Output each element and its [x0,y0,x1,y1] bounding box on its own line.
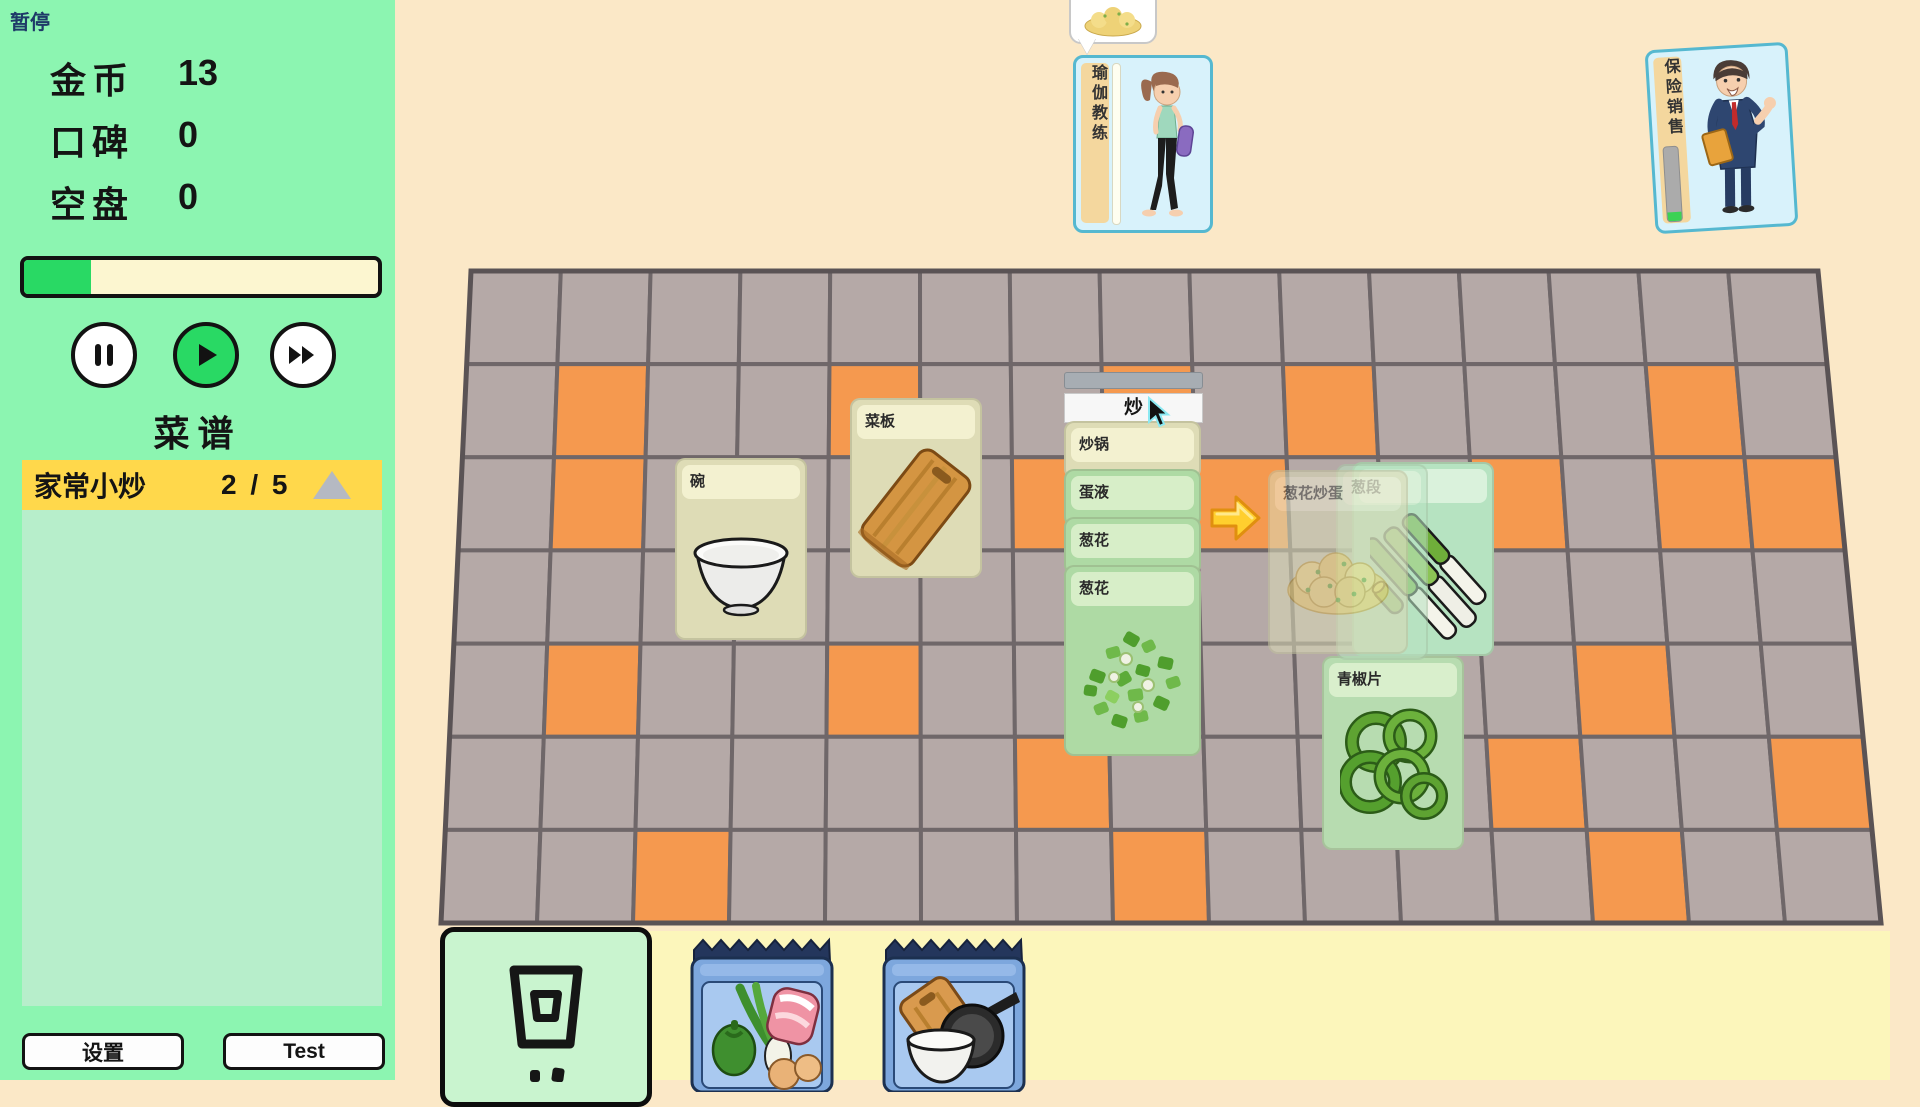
recipe-row[interactable]: 家常小炒 2 / 5 [22,460,382,510]
order-dish-icon [1081,4,1145,38]
customer-insurance-sales-name: 保险销售 [1653,57,1686,139]
day-progress-bar [20,256,382,298]
stat-empty-plates-label: 空盘 [50,176,134,228]
recipe-name: 家常小炒 [34,465,146,505]
cook-progress-bar [1064,372,1203,389]
pepper-rings-art [1340,704,1450,834]
recycle-card[interactable] [440,927,652,1107]
card-bowl[interactable]: 碗 [675,458,807,640]
fast-forward-icon [287,342,319,368]
recipes-heading: 菜谱 [0,405,395,457]
day-progress-fill [24,260,91,294]
card-green-pepper-slices-title: 青椒片 [1329,663,1457,697]
bowl-art [689,513,793,628]
customer-insurance-sales[interactable]: 保险销售 [1645,42,1799,234]
stat-empty-plates-value: 0 [178,176,198,218]
card-cutting-board-title: 菜板 [857,405,975,439]
settings-button[interactable]: 设置 [22,1033,184,1070]
card-cutting-board[interactable]: 菜板 [850,398,982,578]
stat-reputation-value: 0 [178,114,198,156]
customer-yoga-coach-name: 瑜伽教练 [1081,64,1109,144]
card-bowl-title: 碗 [682,465,800,499]
card-chopped-scallion-1-title: 葱花 [1071,524,1194,558]
card-result-scallion-egg-title: 葱花炒蛋 [1275,477,1401,511]
stat-reputation-label: 口碑 [50,114,134,166]
customer-insurance-patience-fill [1667,212,1682,222]
stat-coins-value: 13 [178,52,218,94]
recycle-icon [500,962,592,1082]
card-chopped-scallion-2-title: 葱花 [1071,572,1194,606]
sidebar: 暂停 金币 13 口碑 0 空盘 0 菜谱 家常小炒 2 / 5 [0,0,395,1080]
stat-empty-plates: 空盘 0 [0,176,395,220]
pause-icon [91,342,117,368]
scrambled-egg-art [1278,528,1398,638]
chopped-scallion-art [1078,615,1188,745]
stat-coins: 金币 13 [0,52,395,96]
card-chopped-scallion-2[interactable]: 葱花 [1064,565,1201,756]
pause-state-tag: 暂停 [10,6,50,35]
customer-yoga-coach[interactable]: 瑜伽教练 [1073,55,1213,233]
collapse-caret-icon[interactable] [313,471,351,499]
pause-button[interactable] [71,322,137,388]
craft-arrow-icon [1210,494,1262,542]
test-button[interactable]: Test [223,1033,385,1070]
yoga-coach-figure [1122,66,1206,224]
play-button[interactable] [173,322,239,388]
insurance-sales-figure [1684,53,1790,221]
play-icon [193,342,219,368]
recipe-count: 2 / 5 [221,469,290,501]
customer-yoga-patience-bar [1112,63,1121,225]
order-bubble-tail [1078,38,1096,54]
recipe-detail-panel [22,510,382,1006]
stat-coins-label: 金币 [50,52,134,104]
mouse-cursor [1146,396,1172,430]
card-wok-title: 炒锅 [1071,428,1194,462]
stat-reputation: 口碑 0 [0,114,395,158]
ingredient-pack[interactable] [688,932,836,1092]
cutting-board-art [858,442,974,570]
fast-forward-button[interactable] [270,322,336,388]
cookware-pack[interactable] [880,932,1028,1092]
cook-action-label: 炒 [1064,393,1203,423]
card-egg-liquid-title: 蛋液 [1071,476,1194,510]
card-result-scallion-egg-ghost: 葱花炒蛋 [1268,470,1408,654]
card-green-pepper-slices[interactable]: 青椒片 [1322,656,1464,850]
